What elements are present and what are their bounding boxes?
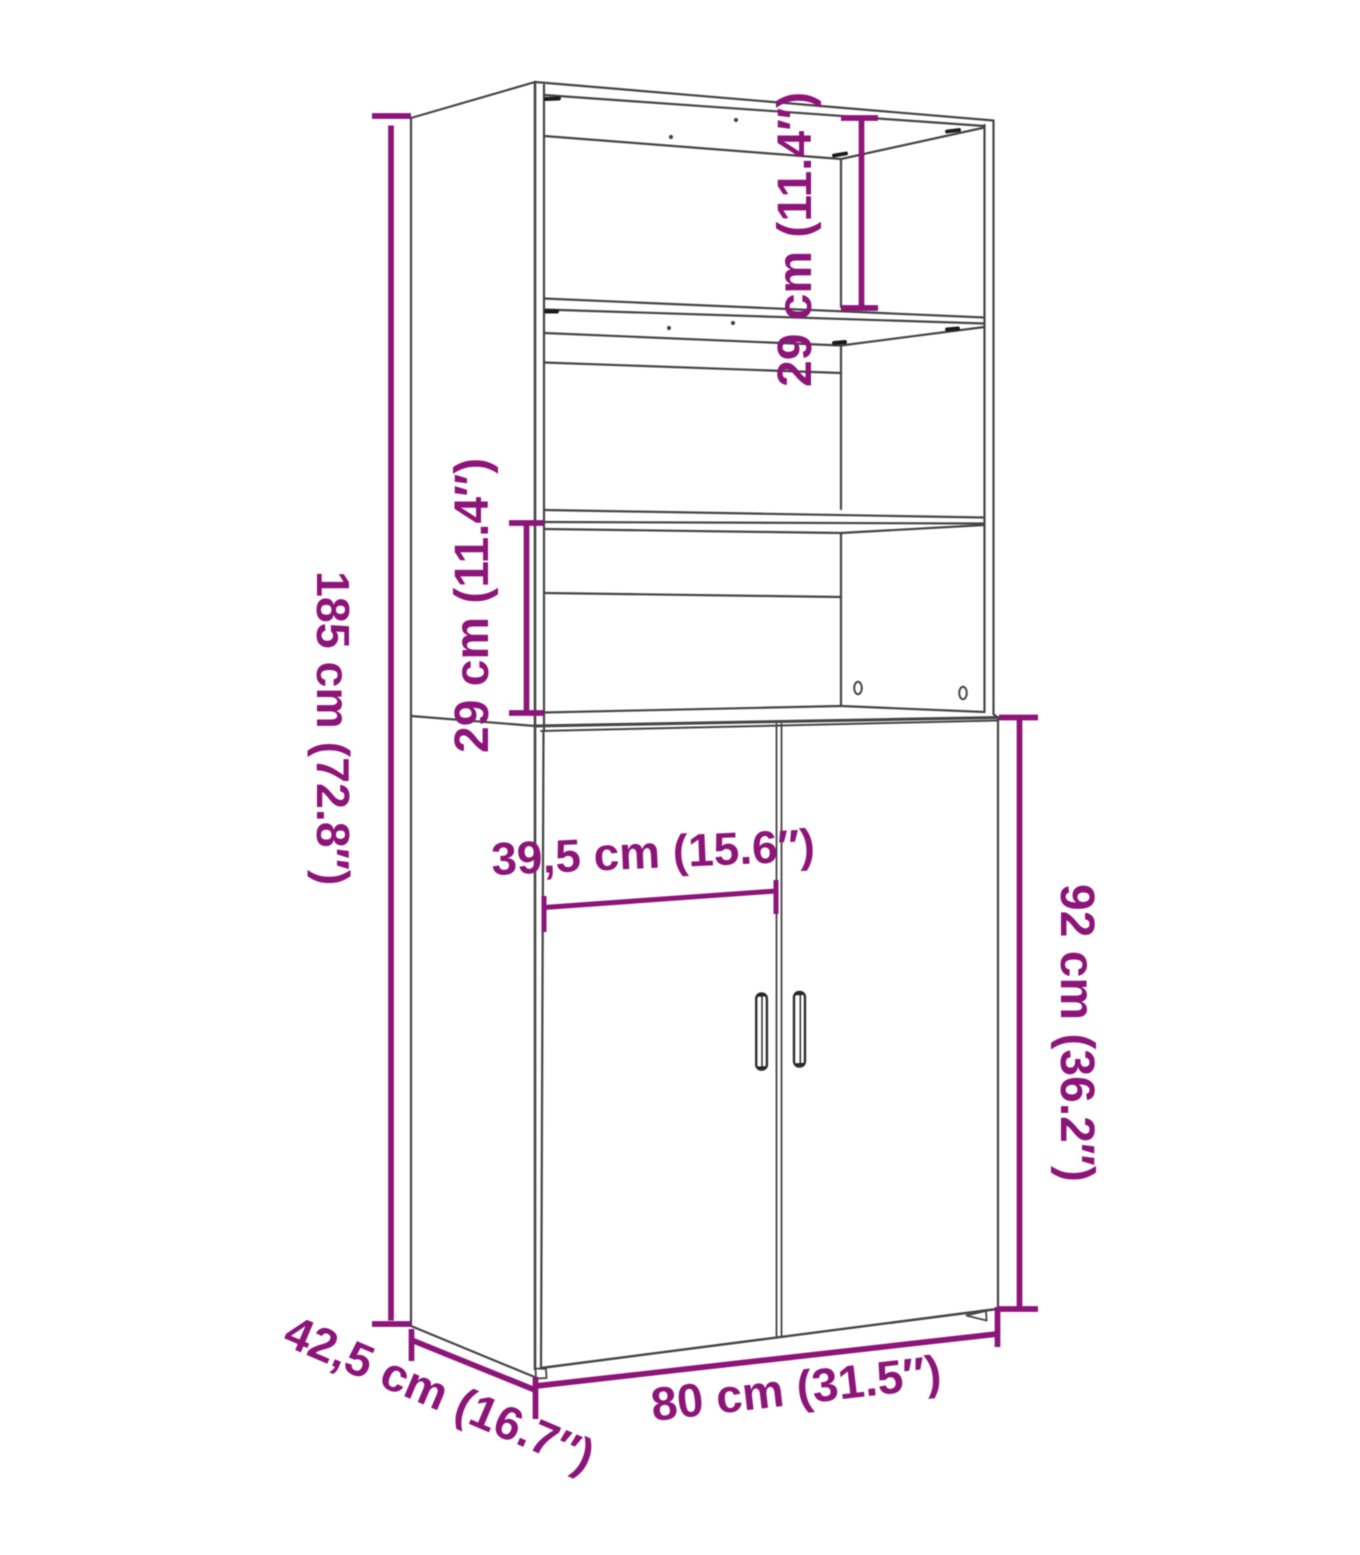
svg-text:92 cm (36.2″): 92 cm (36.2″) (1050, 884, 1103, 1182)
svg-text:29 cm (11.4″): 29 cm (11.4″) (769, 92, 822, 387)
svg-text:185 cm (72.8″): 185 cm (72.8″) (307, 571, 359, 885)
svg-text:29 cm (11.4″): 29 cm (11.4″) (446, 458, 499, 753)
